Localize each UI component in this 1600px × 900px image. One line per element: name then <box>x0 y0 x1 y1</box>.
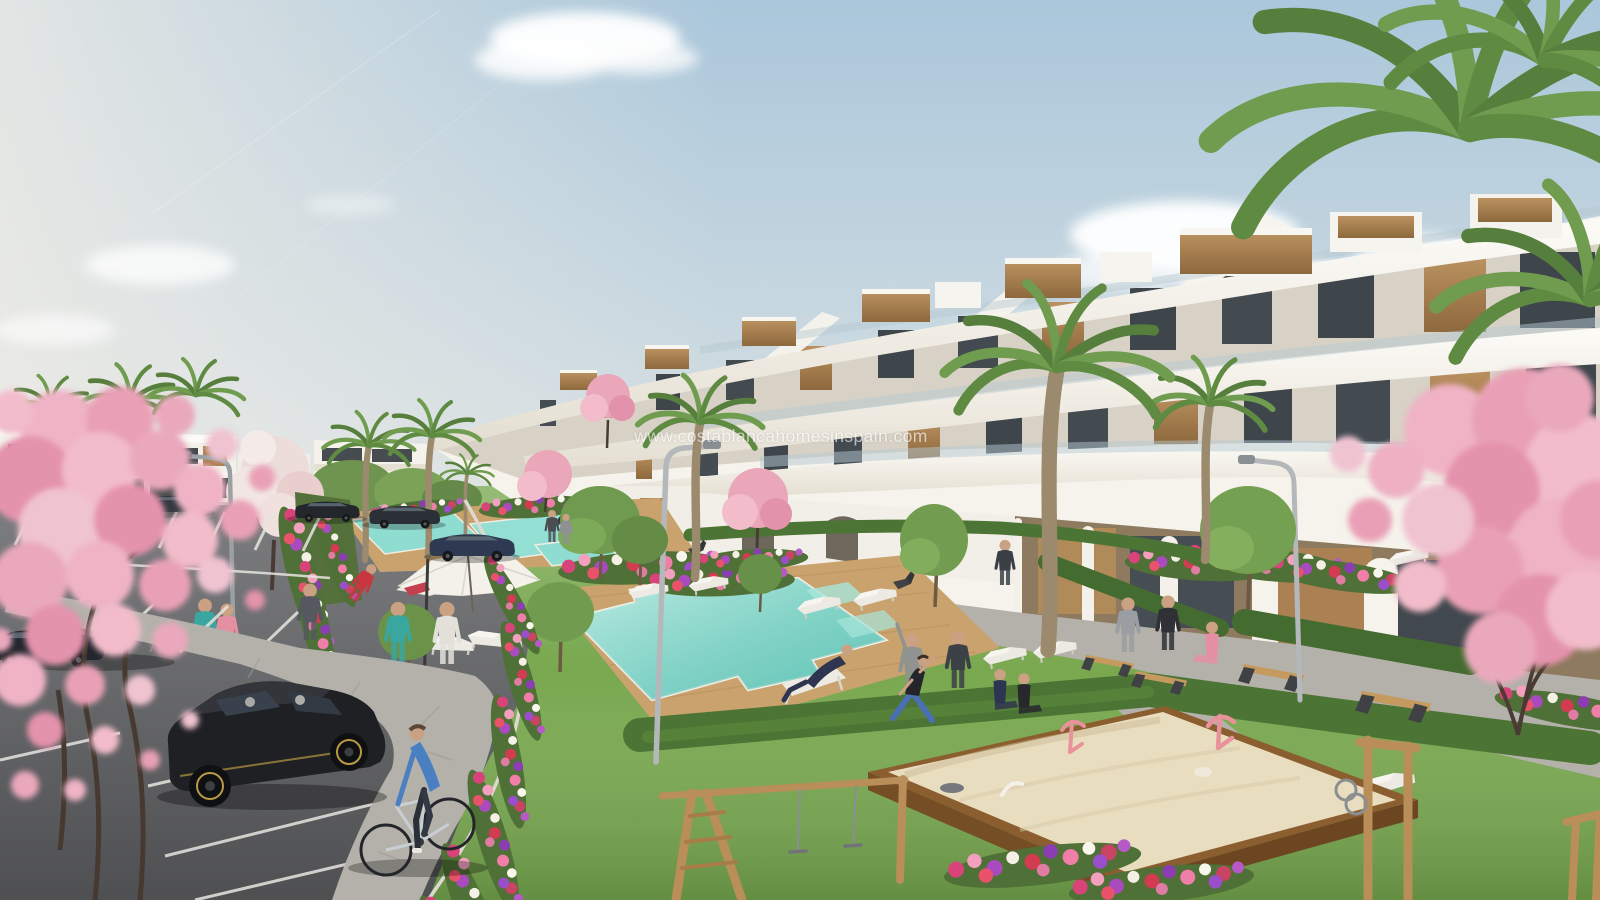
watermark: www.costablancahomesinspain.com <box>634 426 928 447</box>
render-canvas <box>0 0 1600 900</box>
architectural-render: www.costablancahomesinspain.com <box>0 0 1600 900</box>
